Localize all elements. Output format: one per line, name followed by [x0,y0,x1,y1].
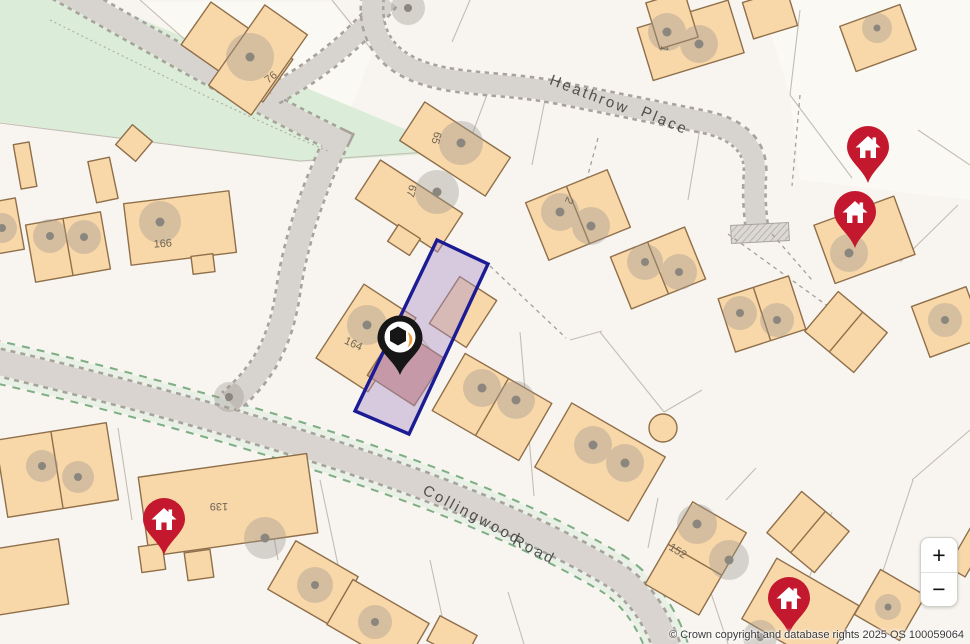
map-tiles: Heathrow Place Collingwood Road 76 65 67… [0,0,970,644]
house-number-label: 139 [210,500,228,512]
zoom-control: + − [920,537,958,607]
road-turning-head [731,222,790,243]
attribution-text: © Crown copyright and database rights 20… [669,629,964,641]
map-canvas[interactable]: Heathrow Place Collingwood Road 76 65 67… [0,0,970,644]
zoom-in-button[interactable]: + [921,538,957,572]
zoom-out-button[interactable]: − [921,572,957,606]
house-number-label: 166 [153,237,172,250]
